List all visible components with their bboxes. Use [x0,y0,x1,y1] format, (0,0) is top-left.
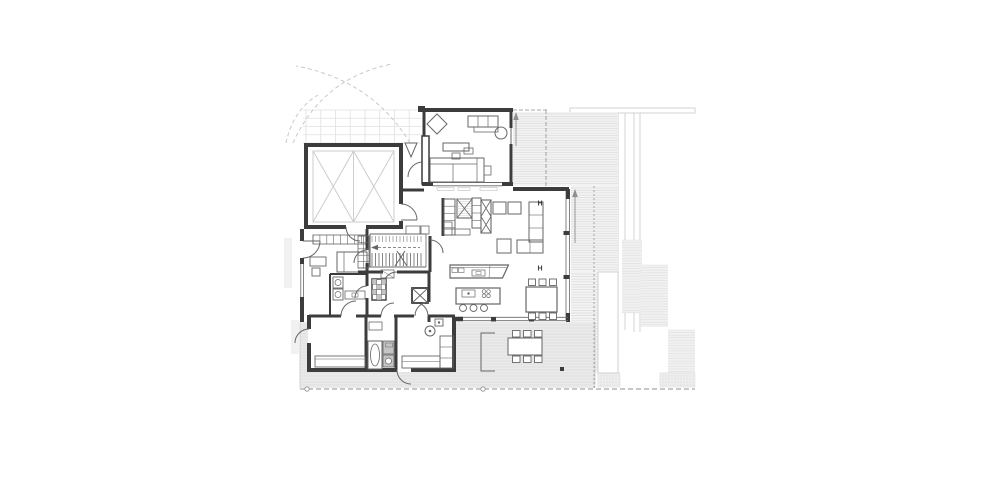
entry-path-fill [284,238,292,288]
deck-east-boards [571,188,618,270]
dining-chair-4 [529,313,536,320]
floor-plan-page: HH [0,0,1000,500]
column-marker-1: H [537,201,542,208]
driveway-arc-2 [296,66,410,143]
outdoor-chair-5 [524,356,532,363]
wc-bowl [386,358,392,364]
outdoor-chair-4 [513,356,521,363]
studio-door-arc [408,162,423,177]
floor-plan-canvas: HH [0,0,1000,500]
dining-chair-2 [539,279,546,286]
outdoor-chair-2 [524,331,532,338]
driveway-arc-3 [286,95,318,143]
outdoor-chair-1 [513,331,521,338]
stool-2 [470,305,477,312]
dining-table [526,287,557,312]
stool-3 [481,305,488,312]
deck-post-dot [560,367,564,371]
outdoor-chair-3 [535,331,543,338]
island-lower [456,288,500,304]
dining-chair-6 [550,313,557,320]
outdoor-chair-6 [535,356,543,363]
dining-chair-3 [550,279,557,286]
svg-text:H: H [537,266,542,273]
boundary-post-1 [305,387,309,391]
column-marker-2: H [537,266,542,273]
studio-wall-west-double [422,136,429,184]
east-mullion-2 [564,275,570,279]
east-mullion-1 [564,231,570,235]
south-post-1 [491,317,496,322]
planter-east [598,272,618,373]
dining-chair-1 [529,279,536,286]
outdoor-table [508,338,542,355]
stool-1 [460,305,467,312]
paving-grid-hlines [303,110,425,143]
sauna-stove-dot [429,330,432,333]
boundary-post-2 [481,387,485,391]
deck-north-fill [513,112,618,186]
stair-treads-upper [372,236,421,242]
island-lower-drain [467,292,469,294]
svg-text:H: H [537,201,542,208]
sauna-fixture-dot [438,321,440,323]
courtyard-triangle [405,143,417,157]
entry-path-2-fill [291,320,299,354]
dining-chair-5 [539,313,546,320]
